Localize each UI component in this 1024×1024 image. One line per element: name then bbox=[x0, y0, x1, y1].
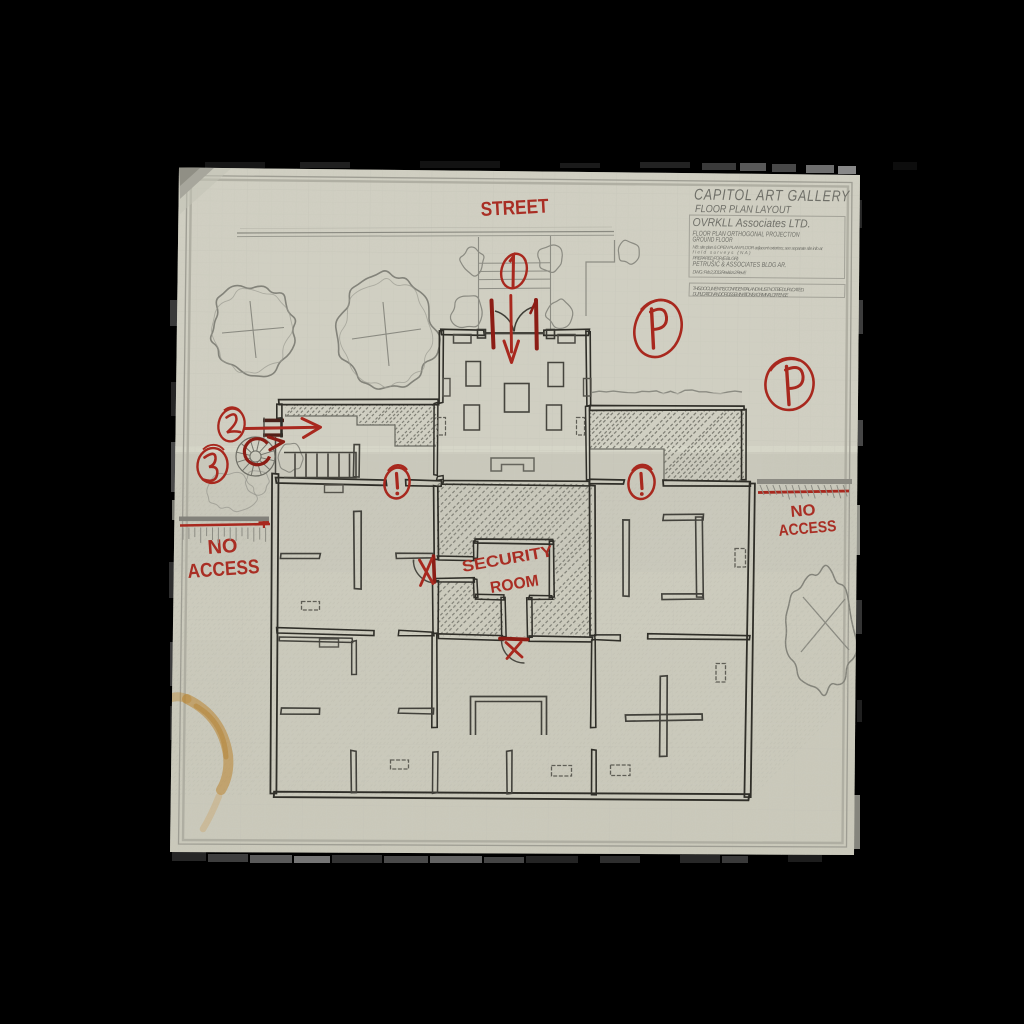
svg-text:field surveys (NA): field surveys (NA) bbox=[692, 250, 751, 256]
svg-text:OVRKLL Associates LTD.: OVRKLL Associates LTD. bbox=[692, 217, 810, 230]
svg-text:NO: NO bbox=[790, 502, 816, 521]
svg-text:GROUND FLOOR: GROUND FLOOR bbox=[692, 237, 732, 244]
svg-text:NO: NO bbox=[207, 535, 238, 559]
svg-text:FLOOR PLAN LAYOUT: FLOOR PLAN LAYOUT bbox=[695, 203, 793, 216]
svg-text:DUPLICATION AND/OR DISSEMINATI: DUPLICATION AND/OR DISSEMINATION IS A CR… bbox=[692, 292, 789, 299]
svg-text:STREET: STREET bbox=[480, 195, 549, 221]
svg-text:DWG : Feb 2, 2013 Revision 2 R: DWG : Feb 2, 2013 Revision 2 Rev E bbox=[692, 270, 747, 277]
